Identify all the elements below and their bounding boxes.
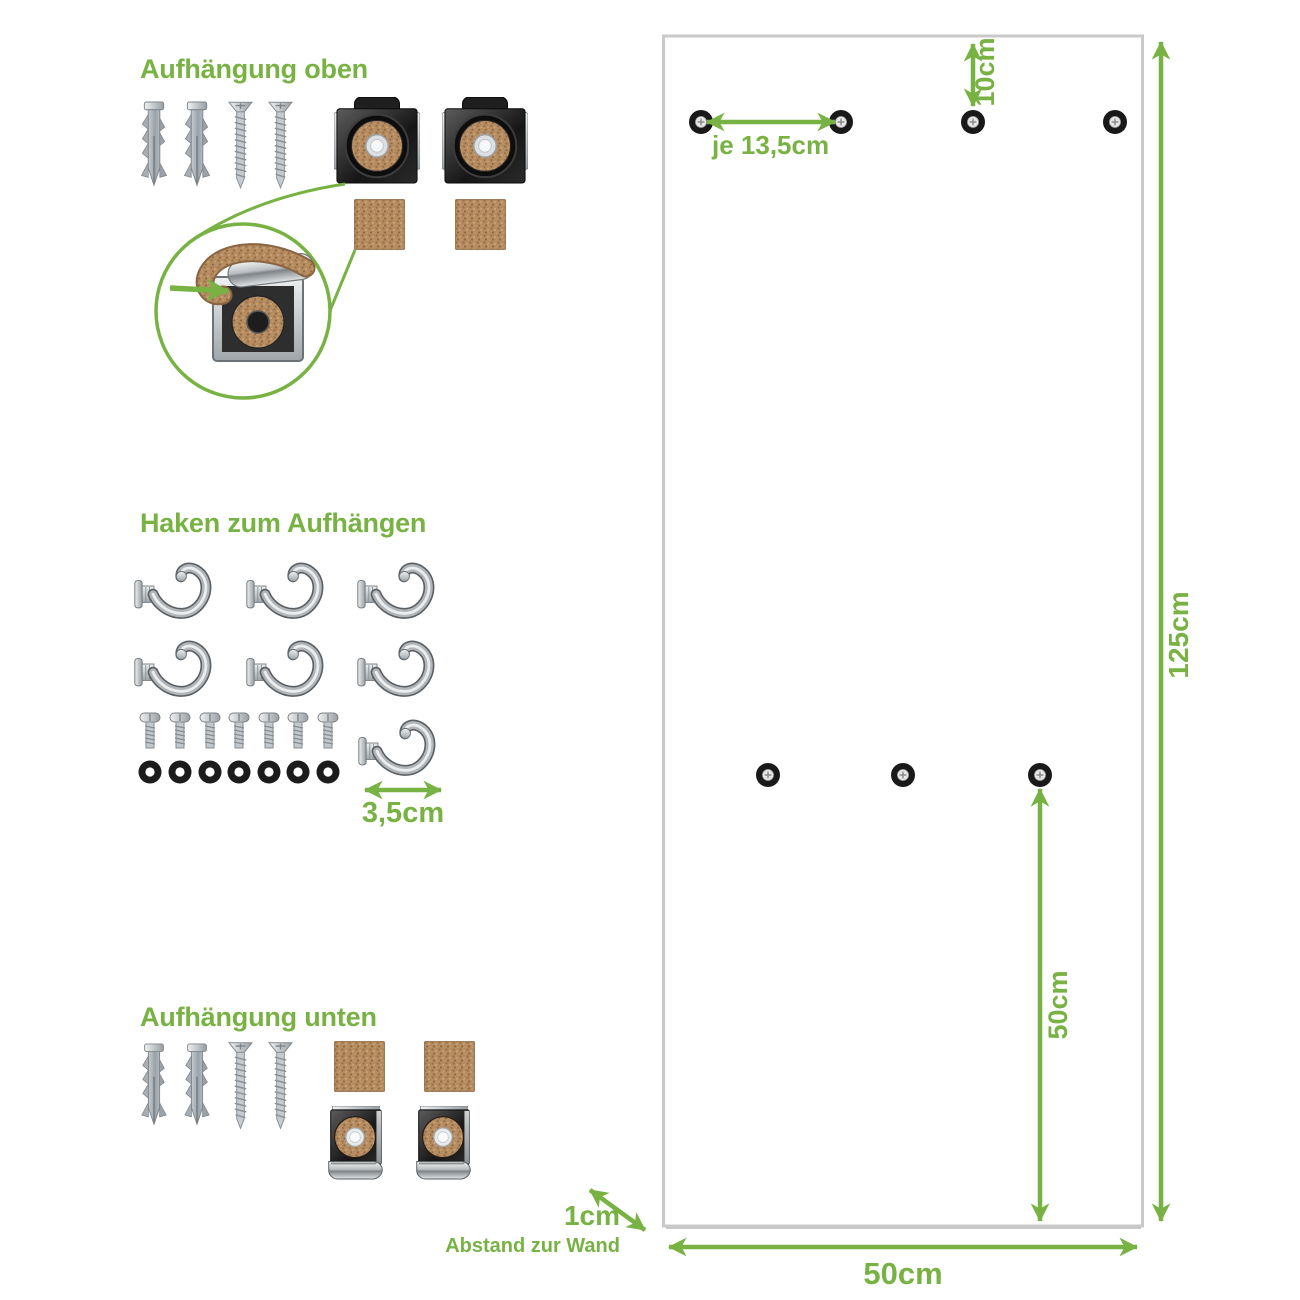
wall-gap-caption: Abstand zur Wand	[425, 1235, 620, 1258]
hook-width-label: 3,5cm	[353, 797, 453, 830]
washer-icon	[139, 761, 162, 784]
top-mount-parts	[141, 97, 528, 398]
washer-icon	[317, 761, 340, 784]
screw-icon	[269, 102, 292, 188]
assembly-instructions-diagram: Aufhängung oben Haken zum Aufhängen Aufh…	[0, 0, 1300, 1300]
lower-segment-label: 50cm	[1044, 950, 1072, 1060]
hook-icon	[135, 646, 206, 691]
wall-gap-label: 1cm	[530, 1200, 620, 1232]
bolt-icon	[229, 713, 249, 748]
bolt-icon	[259, 713, 279, 748]
cork-pad-icon	[425, 1042, 475, 1092]
bolt-icon	[200, 713, 220, 748]
mounting-clip-icon	[329, 1106, 383, 1179]
cork-pad-icon	[456, 200, 506, 250]
width-label: 50cm	[803, 1256, 1003, 1292]
wall-plug-icon	[141, 102, 166, 185]
bottom-mount-parts	[142, 1042, 475, 1180]
wall-plug-icon	[185, 1044, 209, 1124]
mounting-hole-icon	[756, 763, 780, 787]
screw-icon	[229, 102, 252, 188]
washer-icon	[169, 761, 192, 784]
mounting-clip-icon	[417, 1106, 471, 1179]
mounting-hole-icon	[891, 763, 915, 787]
mounting-hole-icon	[1028, 763, 1052, 787]
screw-icon	[269, 1043, 292, 1129]
diagram-artwork	[0, 0, 1300, 1300]
wall-plug-icon	[184, 102, 209, 185]
panel-diagram	[590, 36, 1161, 1247]
hole-spacing-label: je 13,5cm	[712, 130, 829, 161]
cork-pad-icon	[335, 1042, 385, 1092]
wall-plug-icon	[142, 1044, 166, 1124]
section-title-top-mount: Aufhängung oben	[140, 54, 368, 85]
mounting-hole-icon	[1103, 110, 1127, 134]
mounting-clip-icon	[334, 97, 420, 183]
section-title-hooks: Haken zum Aufhängen	[140, 508, 426, 539]
detail-pointer-arrow	[170, 288, 228, 291]
height-label: 125cm	[1165, 575, 1193, 695]
bolt-icon	[318, 713, 338, 748]
hook-icon	[247, 646, 318, 691]
cork-pad-icon	[355, 200, 405, 250]
hooks-parts	[135, 568, 441, 790]
section-title-bottom-mount: Aufhängung unten	[140, 1002, 377, 1033]
bolt-icon	[288, 713, 308, 748]
washer-icon	[228, 761, 251, 784]
bolt-icon	[170, 713, 190, 748]
top-offset-label: 10cm	[971, 27, 999, 117]
hook-icon	[358, 646, 429, 691]
bolt-icon	[140, 713, 160, 748]
hook-icon	[135, 568, 206, 613]
washer-icon	[258, 761, 281, 784]
washer-icon	[287, 761, 310, 784]
screw-icon	[229, 1043, 252, 1129]
hook-icon	[359, 725, 430, 770]
hook-icon	[247, 568, 318, 613]
magnifier-circle-icon	[156, 224, 330, 398]
hook-icon	[358, 568, 429, 613]
mounting-clip-icon	[442, 97, 528, 183]
washer-icon	[199, 761, 222, 784]
